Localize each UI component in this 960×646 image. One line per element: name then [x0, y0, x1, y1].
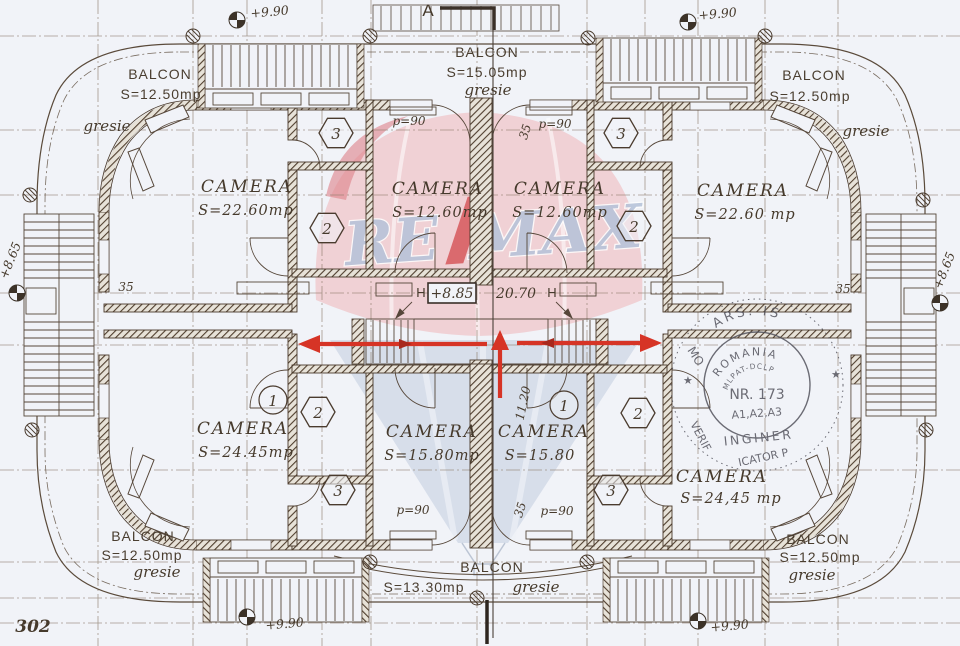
balcony-bottom-center-area: S=13.30mp	[384, 579, 465, 595]
marker-1-bottom-left: 1	[268, 392, 278, 410]
top-right-stair	[596, 38, 762, 102]
marker-1-bottom-right: 1	[559, 397, 569, 415]
balcony-top-center-title: BALCON	[455, 44, 519, 60]
room-top-left-title: CAMERA	[201, 177, 293, 197]
balcony-bottom-left-finish: gresie	[133, 563, 180, 581]
door-width-top-left: p=90	[392, 114, 425, 128]
marker-3-top-left: 3	[331, 125, 341, 143]
room-bottom-center-left-title: CAMERA	[386, 422, 478, 442]
room-top-center-left-area: S=12.60mp	[392, 205, 488, 221]
door-width-top-right: p=90	[538, 117, 571, 131]
dim-wall-right: 35	[835, 282, 850, 296]
balcony-bottom-left-area: S=12.50mp	[102, 547, 183, 563]
room-top-right-title: CAMERA	[697, 181, 789, 201]
balcony-bottom-right-area: S=12.50mp	[780, 549, 861, 565]
marker-2-top-left: 2	[321, 220, 332, 238]
room-top-center-right-area: S=12.60mp	[512, 205, 608, 221]
door-width-bottom-left: p=90	[396, 503, 429, 517]
dim-wall-left: 35	[118, 280, 133, 294]
room-top-left-area: S=22.60mp	[198, 203, 294, 219]
marker-3-top-right: 3	[616, 125, 626, 143]
bottom-left-stair	[203, 558, 369, 622]
balcony-top-right-area: S=12.50mp	[770, 88, 851, 104]
left-edge-stair	[24, 214, 94, 416]
marker-3-bottom-right: 3	[606, 482, 616, 500]
marker-2-bottom-left: 2	[312, 404, 323, 422]
radiator-label-left: H	[416, 285, 425, 300]
balcony-top-center-area: S=15.05mp	[447, 64, 528, 80]
room-top-center-left-title: CAMERA	[392, 179, 484, 199]
floor-plan-drawing: RE MAX	[0, 0, 960, 646]
marker-2-top-right: 2	[628, 218, 639, 236]
stamp-star-left: ★	[683, 374, 693, 387]
balcony-bottom-center-finish: gresie	[512, 578, 559, 596]
balcony-top-left-area: S=12.50mp	[121, 86, 202, 102]
room-bottom-right-title: CAMERA	[676, 467, 768, 487]
room-bottom-center-right-title: CAMERA	[498, 422, 590, 442]
room-bottom-center-right-area: S=15.80	[505, 448, 576, 464]
page-number: 302	[15, 617, 51, 637]
stamp-number: NR. 173	[729, 387, 784, 403]
balcony-top-right-finish: gresie	[842, 122, 889, 140]
balcony-top-right-title: BALCON	[782, 67, 846, 83]
right-edge-stair	[866, 214, 936, 416]
bottom-right-stair	[603, 558, 769, 622]
room-bottom-left-title: CAMERA	[197, 419, 289, 439]
dim-corridor: 20.70	[495, 286, 536, 302]
radiator-label-right: H	[547, 285, 556, 300]
marker-2-bottom-right: 2	[632, 405, 643, 423]
room-top-right-area: S=22.60 mp	[694, 207, 795, 223]
stamp-star-right: ★	[831, 368, 841, 381]
room-bottom-right-area: S=24,45 mp	[680, 491, 781, 507]
section-marker-a: A	[422, 1, 434, 20]
room-bottom-center-left-area: S=15.80mp	[384, 448, 480, 464]
top-left-stair	[198, 44, 364, 108]
balcony-bottom-right-title: BALCON	[786, 531, 850, 547]
door-width-bottom-right: p=90	[540, 504, 573, 518]
balcony-bottom-right-finish: gresie	[788, 566, 835, 584]
level-landing: +8.85	[431, 286, 474, 302]
room-bottom-left-area: S=24.45mp	[198, 445, 294, 461]
balcony-top-left-finish: gresie	[83, 117, 130, 135]
marker-3-bottom-left: 3	[333, 482, 343, 500]
balcony-bottom-left-title: BALCON	[111, 528, 175, 544]
room-top-center-right-title: CAMERA	[514, 179, 606, 199]
balcony-top-center-finish: gresie	[464, 81, 511, 99]
floor-plan-scan: RE MAX	[0, 0, 960, 646]
balcony-top-left-title: BALCON	[128, 66, 192, 82]
balcony-bottom-center-title: BALCON	[460, 559, 524, 575]
